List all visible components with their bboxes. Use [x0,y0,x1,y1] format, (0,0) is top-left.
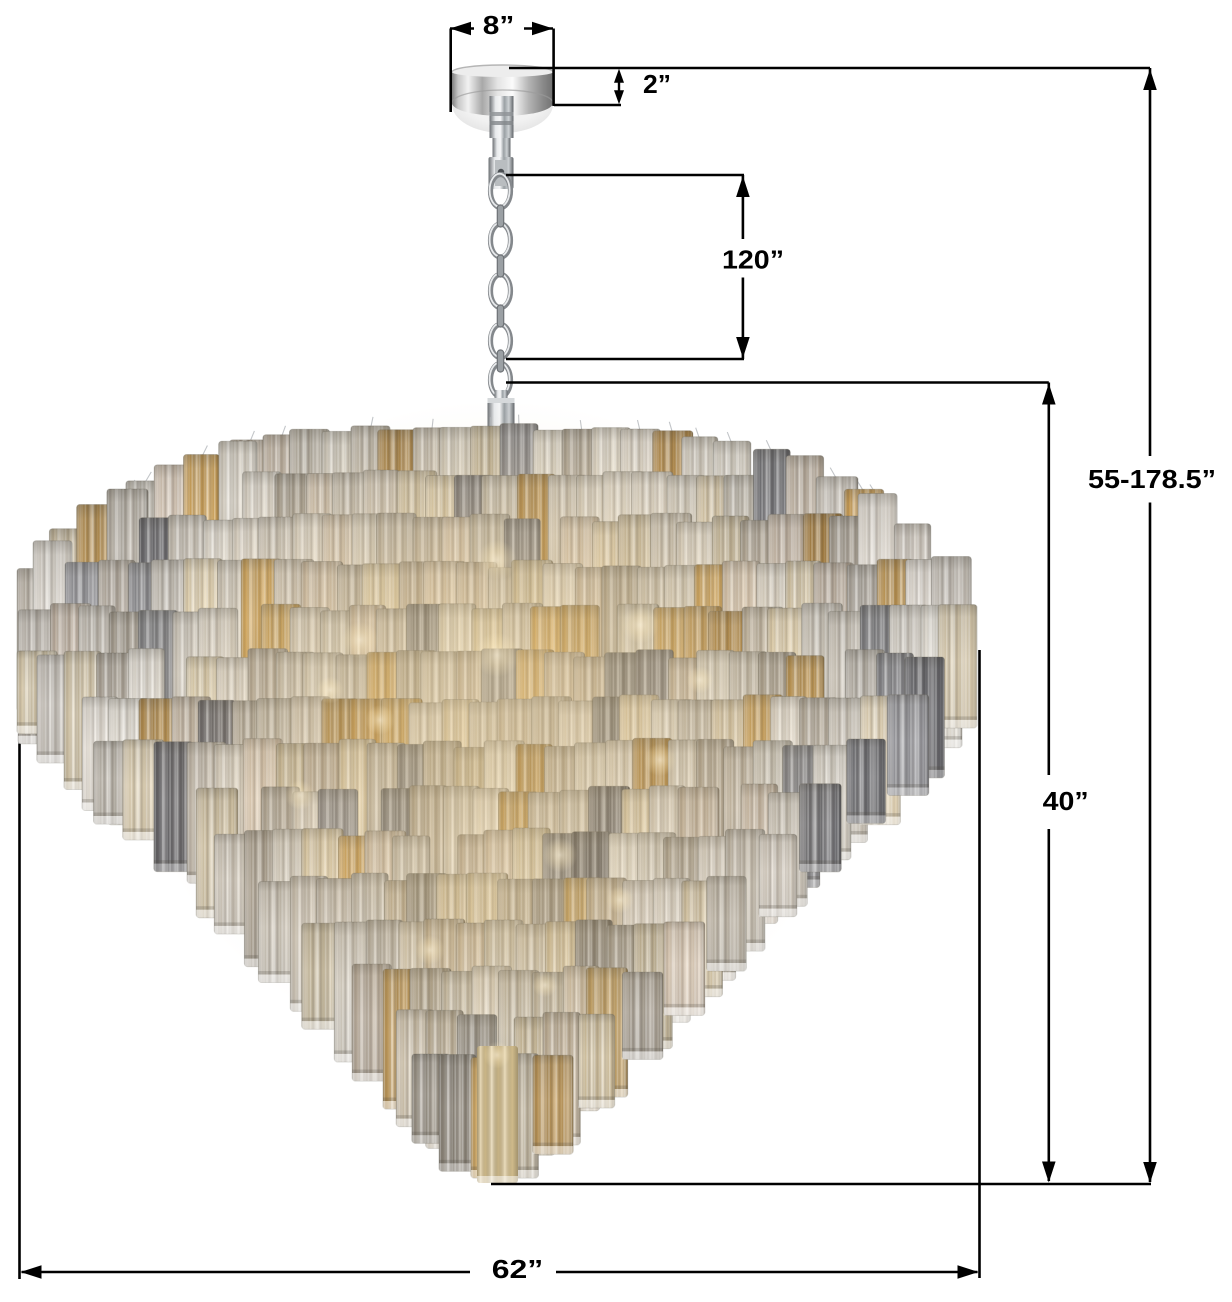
svg-text:40”: 40” [1043,786,1089,816]
svg-text:8”: 8” [483,10,515,40]
svg-text:120”: 120” [722,245,784,275]
svg-text:55-178.5”: 55-178.5” [1088,464,1216,494]
svg-text:2”: 2” [643,69,671,99]
svg-text:62”: 62” [492,1254,544,1284]
